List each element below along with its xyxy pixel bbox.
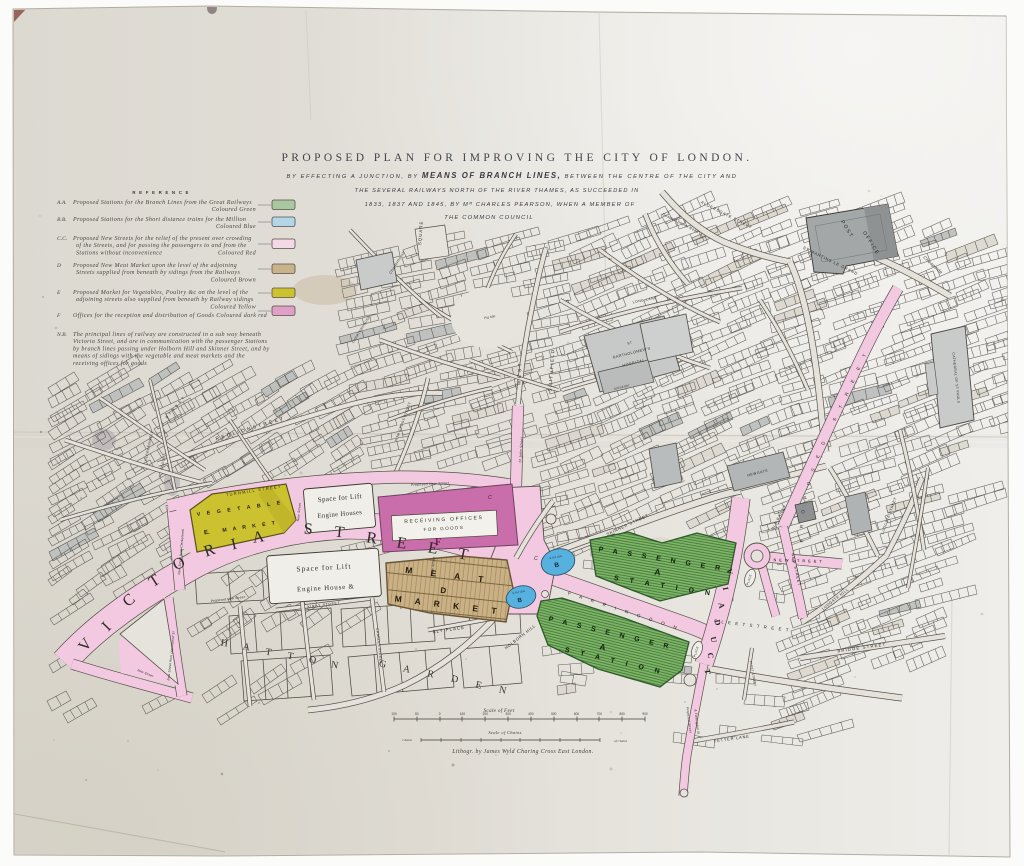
- svg-text:Proposed Market for Vegetables: Proposed Market for Vegetables, Poultry …: [72, 289, 248, 296]
- svg-text:THE COMMON COUNCIL: THE COMMON COUNCIL: [444, 215, 534, 221]
- svg-text:700: 700: [597, 712, 603, 716]
- svg-text:C: C: [534, 556, 538, 562]
- svg-text:Coloured Blue: Coloured Blue: [216, 224, 256, 230]
- svg-text:C.C.: C.C.: [57, 236, 67, 242]
- svg-text:N.B.: N.B.: [56, 332, 67, 338]
- svg-text:Proposed Stations for the Bran: Proposed Stations for the Branch Lines f…: [72, 199, 252, 206]
- svg-text:Victoria Street, and are in co: Victoria Street, and are in communicatio…: [73, 339, 268, 345]
- svg-text:B.B.: B.B.: [57, 217, 67, 223]
- svg-text:Coloured Brown: Coloured Brown: [211, 277, 256, 283]
- svg-text:Streets supplied from beneath: Streets supplied from beneath by sidings…: [76, 269, 240, 276]
- svg-text:Proposed New Streets for the r: Proposed New Streets for the relief of t…: [72, 235, 252, 242]
- svg-text:50: 50: [415, 712, 419, 716]
- svg-text:Chains: Chains: [402, 738, 412, 742]
- svg-text:D: D: [56, 263, 61, 269]
- svg-text:A.A.: A.A.: [56, 200, 67, 206]
- svg-text:The principal lines of railway: The principal lines of railway are const…: [73, 331, 261, 338]
- svg-text:800: 800: [620, 712, 626, 716]
- svg-text:Coloured Yellow: Coloured Yellow: [210, 304, 256, 310]
- svg-text:Lithogr. by James Wyld Charing: Lithogr. by James Wyld Charing Cross Eas…: [451, 749, 593, 755]
- svg-text:600: 600: [574, 712, 580, 716]
- svg-text:St: St: [608, 257, 611, 261]
- svg-text:F: F: [56, 313, 61, 319]
- svg-text:means of sidings with the vege: means of sidings with the vegetable and …: [73, 353, 245, 360]
- svg-text:PROPOSED PLAN FOR IMPROVING: PROPOSED PLAN FOR IMPROVING THE CITY OF …: [282, 152, 753, 164]
- svg-text:Coloured Green: Coloured Green: [212, 207, 256, 213]
- svg-text:900: 900: [642, 712, 648, 716]
- svg-text:Coloured Red: Coloured Red: [218, 250, 257, 256]
- svg-text:Stations without inconvenience: Stations without inconvenience: [76, 250, 162, 256]
- svg-text:THE SEVERAL RAILWAYS NORTH: THE SEVERAL RAILWAYS NORTH OF THE RIVER …: [355, 188, 640, 194]
- svg-text:of Chains: of Chains: [614, 739, 628, 743]
- svg-text:T: T: [334, 524, 346, 542]
- svg-text:200: 200: [483, 712, 489, 716]
- svg-text:300: 300: [505, 712, 511, 716]
- svg-text:Proposed Stations for the Shor: Proposed Stations for the Short distance…: [72, 216, 246, 223]
- svg-text:H: H: [220, 638, 229, 650]
- svg-text:1833, 1837 AND 1845, BY Mᴿ CHA: 1833, 1837 AND 1845, BY Mᴿ CHARLES PEARS…: [365, 201, 636, 208]
- svg-text:100: 100: [460, 712, 466, 716]
- svg-text:adjoining streets also supplie: adjoining streets also supplied from ben…: [76, 296, 254, 303]
- svg-text:Proposed New Meat Market upon: Proposed New Meat Market upon the level …: [72, 262, 237, 269]
- svg-text:receiving offices for goods: receiving offices for goods: [73, 360, 147, 367]
- svg-text:400: 400: [528, 712, 534, 716]
- svg-text:S: S: [303, 521, 313, 538]
- svg-text:0: 0: [439, 712, 441, 716]
- svg-text:100: 100: [391, 712, 397, 716]
- svg-text:Offices for the reception and: Offices for the reception and distributi…: [73, 312, 268, 319]
- svg-text:C: C: [488, 495, 492, 501]
- svg-text:500: 500: [551, 712, 557, 716]
- svg-text:R E F E R E N C E: R E F E R E N C E: [132, 190, 189, 195]
- svg-text:Scale of Chains: Scale of Chains: [488, 730, 521, 735]
- svg-text:by branch lines passing under: by branch lines passing under Holborn Hi…: [73, 346, 270, 352]
- svg-text:of the Streets, and for passin: of the Streets, and for passing the pass…: [76, 242, 247, 249]
- svg-text:E: E: [56, 290, 61, 296]
